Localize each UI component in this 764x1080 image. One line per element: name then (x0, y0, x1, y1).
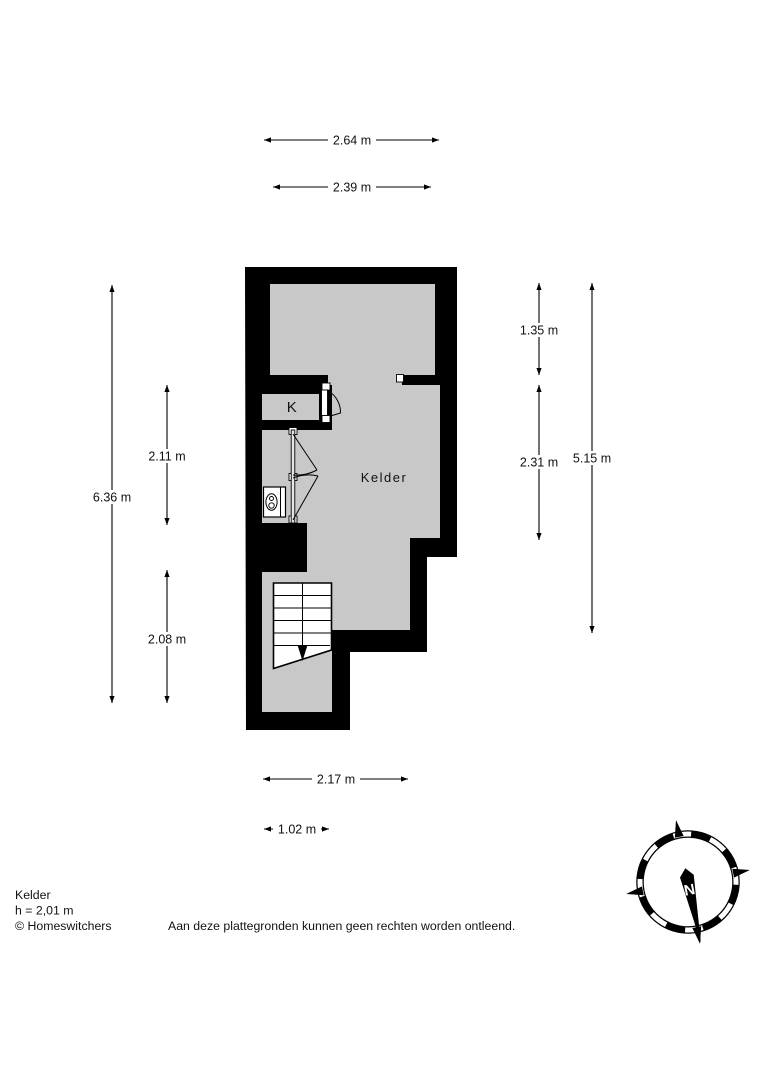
dim-bottom-stairs: 1.02 m (264, 822, 329, 837)
svg-text:5.15 m: 5.15 m (573, 452, 611, 466)
dim-top-inner: 2.39 m (273, 180, 431, 195)
footer-copyright: © Homeswitchers (15, 919, 112, 933)
jamb-top-right (397, 375, 404, 383)
svg-text:2.11 m: 2.11 m (148, 450, 185, 464)
floorplan-page: Kelder K 2.64 m 2.39 m 6.36 m 2.11 m (0, 0, 764, 1080)
dim-right-total: 5.15 m (568, 283, 616, 633)
dim-left-total: 6.36 m (88, 285, 136, 703)
dim-top-outer: 2.64 m (264, 133, 439, 148)
toilet-icon (264, 487, 286, 517)
jamb-k-door-bottom (322, 416, 330, 423)
dim-left-mid: 2.11 m (143, 385, 191, 525)
footer: Kelder h = 2,01 m © Homeswitchers Aan de… (15, 888, 515, 933)
svg-text:2.31 m: 2.31 m (520, 456, 558, 470)
room-label-k: K (287, 399, 298, 416)
dim-bottom-width: 2.17 m (263, 772, 408, 787)
dim-left-bottom: 2.08 m (143, 570, 191, 703)
svg-text:1.35 m: 1.35 m (520, 324, 558, 338)
svg-text:2.08 m: 2.08 m (148, 633, 186, 647)
footer-ceiling-height: h = 2,01 m (15, 904, 73, 918)
footer-room-name: Kelder (15, 888, 51, 902)
room-label-kelder: Kelder (361, 470, 408, 485)
dim-right-top: 1.35 m (515, 283, 563, 375)
floorplan-drawing: Kelder K 2.64 m 2.39 m 6.36 m 2.11 m (0, 0, 764, 1080)
svg-text:1.02 m: 1.02 m (278, 823, 316, 837)
svg-text:2.17 m: 2.17 m (317, 773, 355, 787)
svg-text:2.39 m: 2.39 m (333, 181, 371, 195)
hall-partition (291, 430, 295, 523)
svg-text:6.36 m: 6.36 m (93, 491, 131, 505)
footer-disclaimer: Aan deze plattegronden kunnen geen recht… (168, 919, 515, 933)
dim-right-mid: 2.31 m (515, 385, 563, 540)
svg-text:2.64 m: 2.64 m (333, 134, 371, 148)
jamb-k-door-top (322, 383, 330, 390)
compass-icon: N (614, 808, 762, 956)
